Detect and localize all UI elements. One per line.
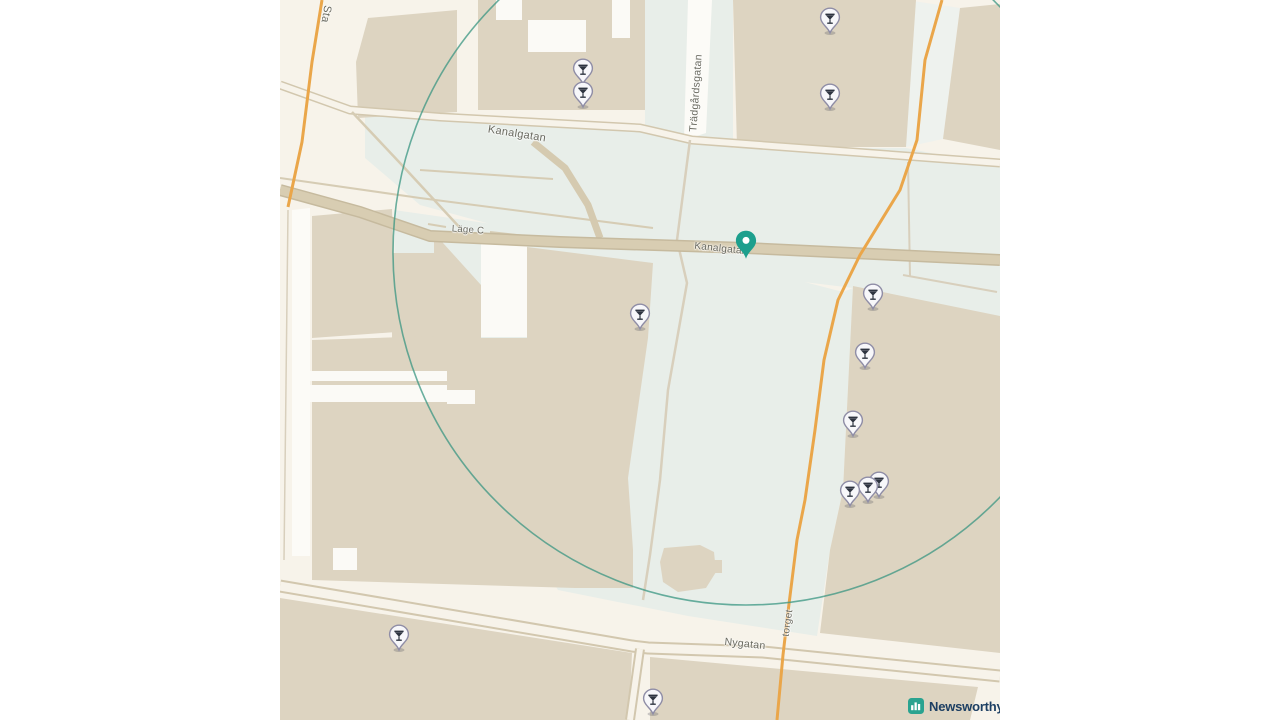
venue-marker[interactable]: [388, 624, 410, 652]
bar-chart-icon: [908, 698, 924, 714]
venue-marker[interactable]: [629, 303, 651, 331]
venue-marker[interactable]: [819, 83, 841, 111]
venue-marker[interactable]: [839, 480, 861, 508]
street-label-stationsgatan-partial: Sta: [319, 4, 334, 23]
venue-marker[interactable]: [642, 688, 664, 716]
venue-marker[interactable]: [854, 342, 876, 370]
selected-location-pin[interactable]: [735, 230, 757, 260]
street-label-kanalgatan-upper: Kanalgatan: [487, 123, 547, 144]
venue-marker[interactable]: [572, 81, 594, 109]
screenshot-stage: StaKanalgatanKanalgatanTrädgårdsgatanLäg…: [0, 0, 1280, 720]
street-label-nygatan: Nygatan: [724, 636, 766, 652]
venue-marker[interactable]: [819, 7, 841, 35]
street-label-lage-c: Läge C: [451, 223, 484, 236]
map-viewport[interactable]: StaKanalgatanKanalgatanTrädgårdsgatanLäg…: [280, 0, 1000, 720]
venue-marker[interactable]: [862, 283, 884, 311]
map-overlay: StaKanalgatanKanalgatanTrädgårdsgatanLäg…: [280, 0, 1000, 720]
street-label-tradgardsgatan: Trädgårdsgatan: [687, 54, 704, 133]
newsworthy-logo[interactable]: Newsworthy: [908, 698, 1000, 714]
venue-marker[interactable]: [842, 410, 864, 438]
newsworthy-brand-text: Newsworthy: [929, 699, 1000, 714]
street-label-torget: torget: [781, 609, 796, 638]
